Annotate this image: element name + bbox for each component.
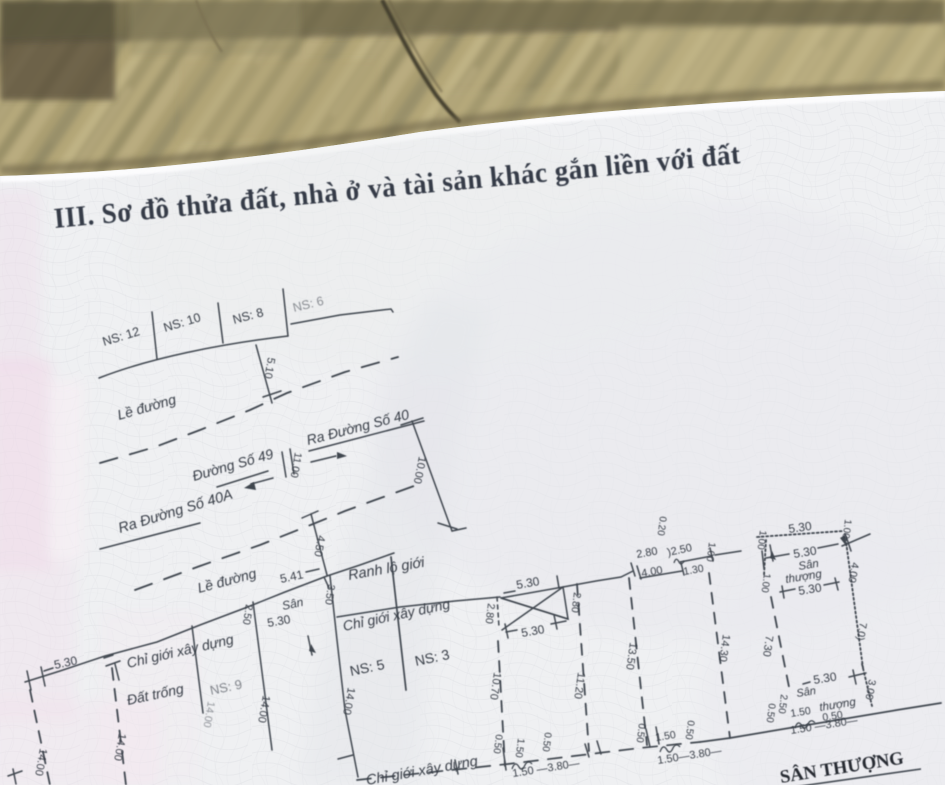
svg-text:2.80: 2.80 — [569, 592, 583, 614]
svg-text:2.80: 2.80 — [483, 603, 497, 625]
